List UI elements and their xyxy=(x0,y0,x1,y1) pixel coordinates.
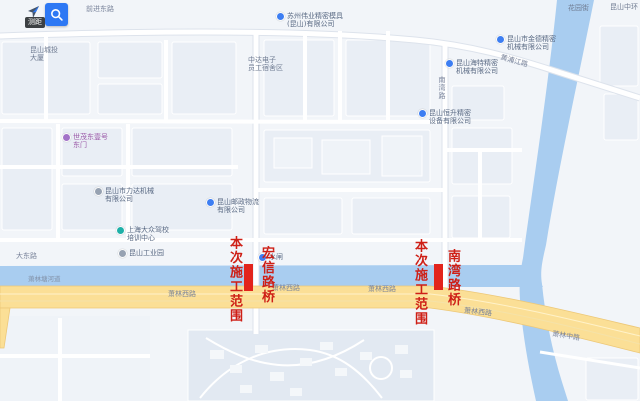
poi-label[interactable]: 上海大众驾校培训中心 xyxy=(116,226,169,242)
magnifier-icon xyxy=(49,7,64,22)
poi-icon xyxy=(118,249,127,258)
river-label: 萧林塘河道 xyxy=(28,276,61,283)
map-window: 前进东路 黄浦江路 南湾路 大东路 萧林塘河道 萧林西路 萧林西路 萧林西路 萧… xyxy=(0,0,640,401)
road-label: 大东路 xyxy=(16,253,37,260)
construction-scope-label-left: 本次施工范围 xyxy=(228,236,241,323)
poi-label[interactable]: 昆山恒升精密设备有限公司 xyxy=(418,109,471,125)
poi-label[interactable]: 苏州伟业精密模具(昆山)有限公司 xyxy=(276,12,343,28)
bridge-name-nanwan: 南湾路桥 xyxy=(446,249,459,307)
road-label: 南湾路 xyxy=(438,76,445,100)
poi-label[interactable]: 昆山海特精密机械有限公司 xyxy=(445,59,498,75)
poi-icon xyxy=(116,226,125,235)
poi-label: 花园街 xyxy=(568,4,589,12)
community-area xyxy=(188,330,434,401)
measure-tooltip: 测距 xyxy=(25,17,45,28)
search-button[interactable] xyxy=(45,3,68,26)
poi-label: 昆山中环 xyxy=(610,3,638,11)
poi-label[interactable]: 世茂东壹号东门 xyxy=(62,133,108,149)
road-label: 萧林西路 xyxy=(368,286,396,293)
poi-label[interactable]: 昆山邮政物流有限公司 xyxy=(206,198,259,214)
road-label: 萧林西路 xyxy=(168,291,196,298)
poi-label: 中达电子员工宿舍区 xyxy=(248,56,283,72)
poi-label[interactable]: 昆山市金德精密机械有限公司 xyxy=(496,35,556,51)
poi-label[interactable]: 昆山工业园 xyxy=(118,249,164,258)
poi-icon xyxy=(276,12,285,21)
poi-icon xyxy=(94,187,103,196)
road-label: 萧林西路 xyxy=(272,285,300,292)
construction-highlight-left xyxy=(244,264,253,291)
bridge-name-hongxin: 宏信路桥 xyxy=(260,246,273,304)
poi-label[interactable]: 昆山市力达机械有限公司 xyxy=(94,187,154,203)
pan-tool-button[interactable] xyxy=(27,4,42,18)
poi-icon xyxy=(496,35,505,44)
construction-scope-label-right: 本次施工范围 xyxy=(413,239,426,326)
poi-icon xyxy=(445,59,454,68)
poi-icon xyxy=(62,133,71,142)
poi-icon xyxy=(418,109,427,118)
poi-label: 昆山城投大厦 xyxy=(30,46,58,62)
construction-highlight-right xyxy=(434,264,443,290)
road-label: 前进东路 xyxy=(86,6,114,13)
poi-icon xyxy=(206,198,215,207)
